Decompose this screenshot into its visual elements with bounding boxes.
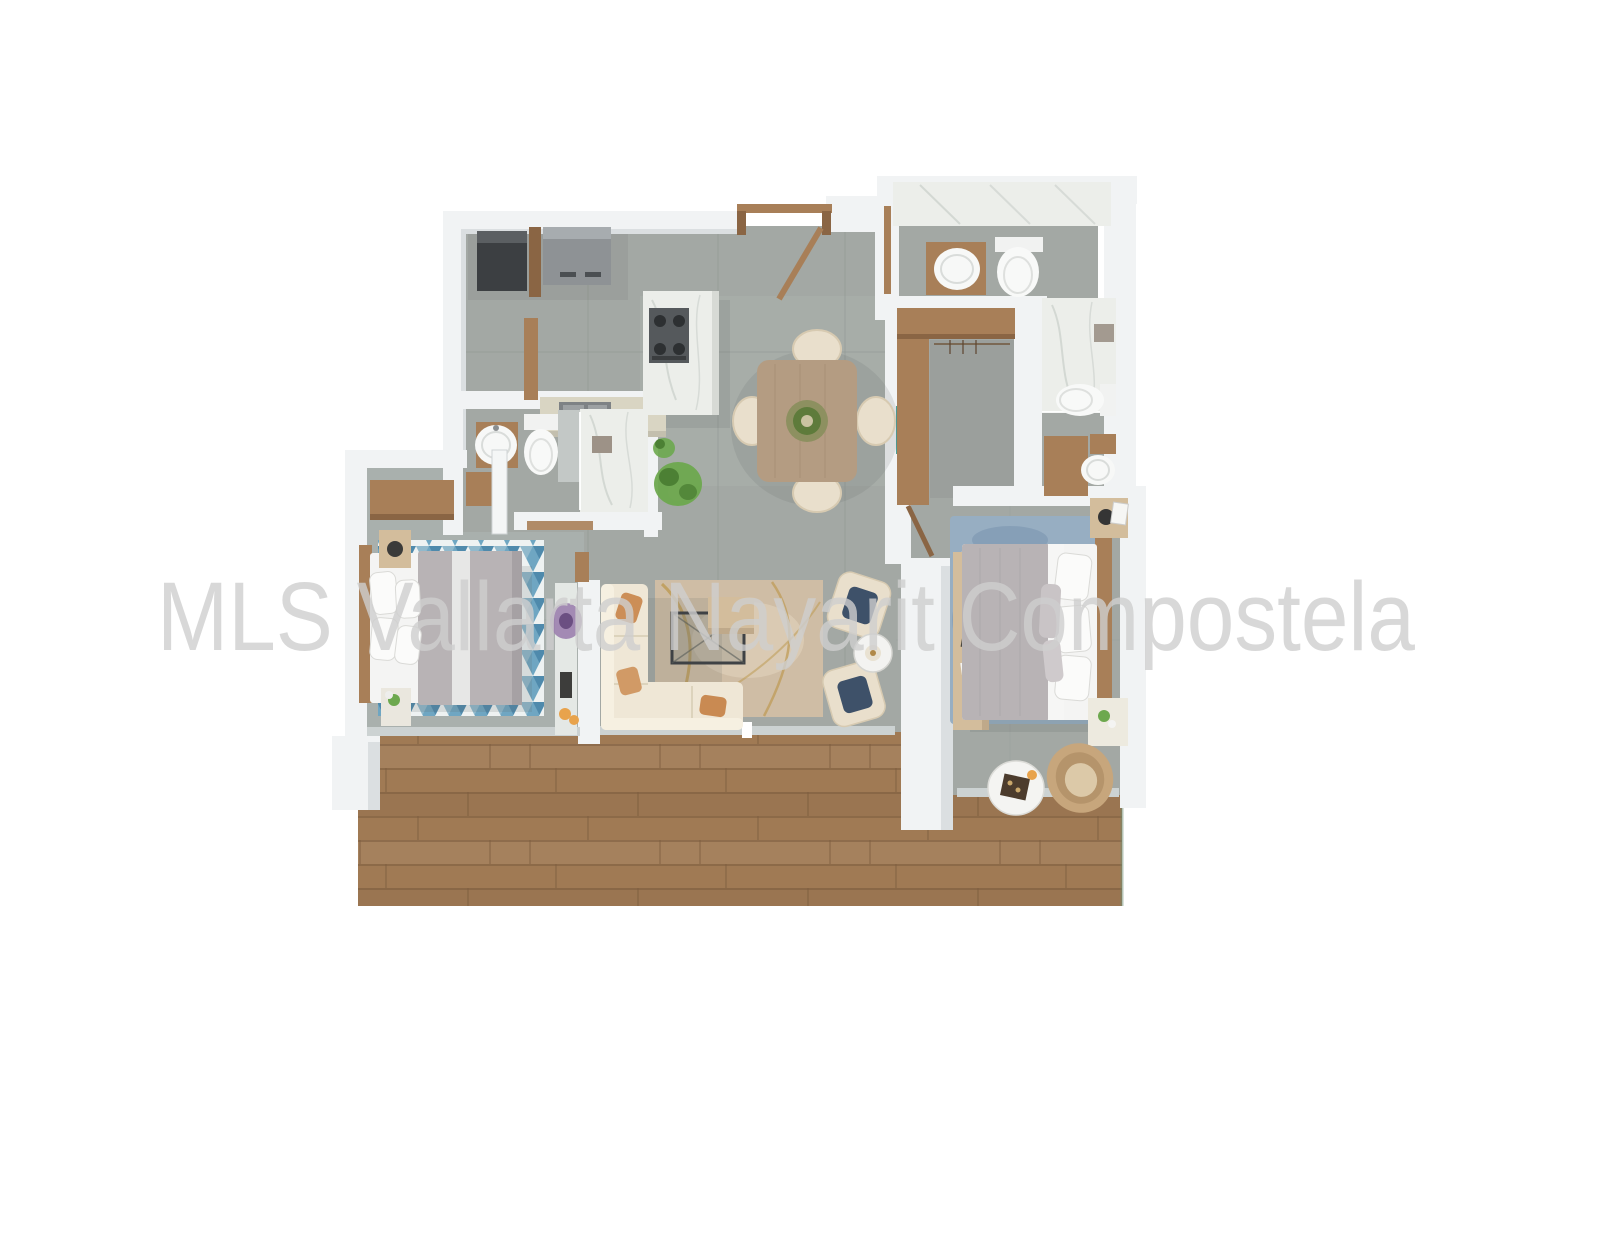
cooktop [649,308,689,363]
guestbath-toilet [524,429,558,475]
burner [673,343,685,355]
fridge-top [477,231,527,243]
plant-foliage [654,462,702,506]
mbath-showerhead [1094,324,1114,342]
island-edge [712,291,719,415]
watermark-layer: MLS Vallarta Nayarit Compostela [157,562,1415,671]
watermark-text: MLS Vallarta Nayarit Compostela [157,562,1415,671]
guestbath-cabinet [466,472,494,506]
rbed-tray-dot [1008,781,1013,786]
floorplan-image: MLS Vallarta Nayarit Compostela [0,0,1600,1236]
plant-foliage-dark [679,484,697,500]
burner [654,343,666,355]
burner [673,315,685,327]
kitchen-cabinet-top [543,227,611,239]
dining-centerpiece-center [801,415,813,427]
rbed-nightstand-2 [1088,698,1128,746]
lbed-nightstand-deco [387,541,403,557]
entry-header [737,204,832,213]
closet-wood-top [897,308,1015,338]
kitchen-wood-cabinet [524,318,538,400]
rbed-vase [1108,720,1116,728]
entry-frame-left [737,211,746,235]
plant-foliage-dark [659,468,679,486]
plant-small-dark [655,439,665,449]
floorplan-shapes [332,176,1146,906]
entry-frame-right [822,211,831,235]
living-sill-mullion [742,722,752,738]
mbath-vanity-shelf [1090,434,1116,454]
cabinet-handle [585,272,601,277]
cabinet-handle [560,272,576,277]
rbed-table-fruit [1027,770,1037,780]
rbed-nightstand-frame [1111,502,1129,525]
deck-column-shade [368,742,380,810]
lbed-wardrobe-edge [370,514,454,520]
mbath-vanity [1044,436,1088,496]
dining-chair [857,397,895,445]
guestbath-threshold [527,521,593,530]
burner [654,315,666,327]
wall-closet-right [1014,302,1042,504]
guestbath-shower [580,409,648,512]
sofa-pillow [699,694,728,717]
floorplan-page: MLS Vallarta Nayarit Compostela [0,0,1600,1236]
bench-deco [560,672,572,698]
guestbath-faucet [493,425,499,431]
lbed-flowers-white [385,691,393,699]
fridge-side-panel [529,227,541,297]
sofa-back-bottom [601,718,743,730]
closet-floor-shade [930,340,1014,500]
rbed-flower [1098,710,1110,722]
lbedroom-glass-sill [367,727,580,736]
rbed-tray-dot [1016,788,1021,793]
burner-knobs [652,356,686,360]
guestbath-toilet-tank [524,414,558,430]
laundry-door-frame [884,206,891,294]
guestbath-partition [558,410,580,482]
shower-drain [592,436,612,453]
laundry-marble-wall [893,182,1111,226]
lbedroom-door-leaf [492,450,507,534]
bench-fruit [569,715,579,725]
closet-wood-shade [897,334,1015,339]
bench-fruit [559,708,571,720]
